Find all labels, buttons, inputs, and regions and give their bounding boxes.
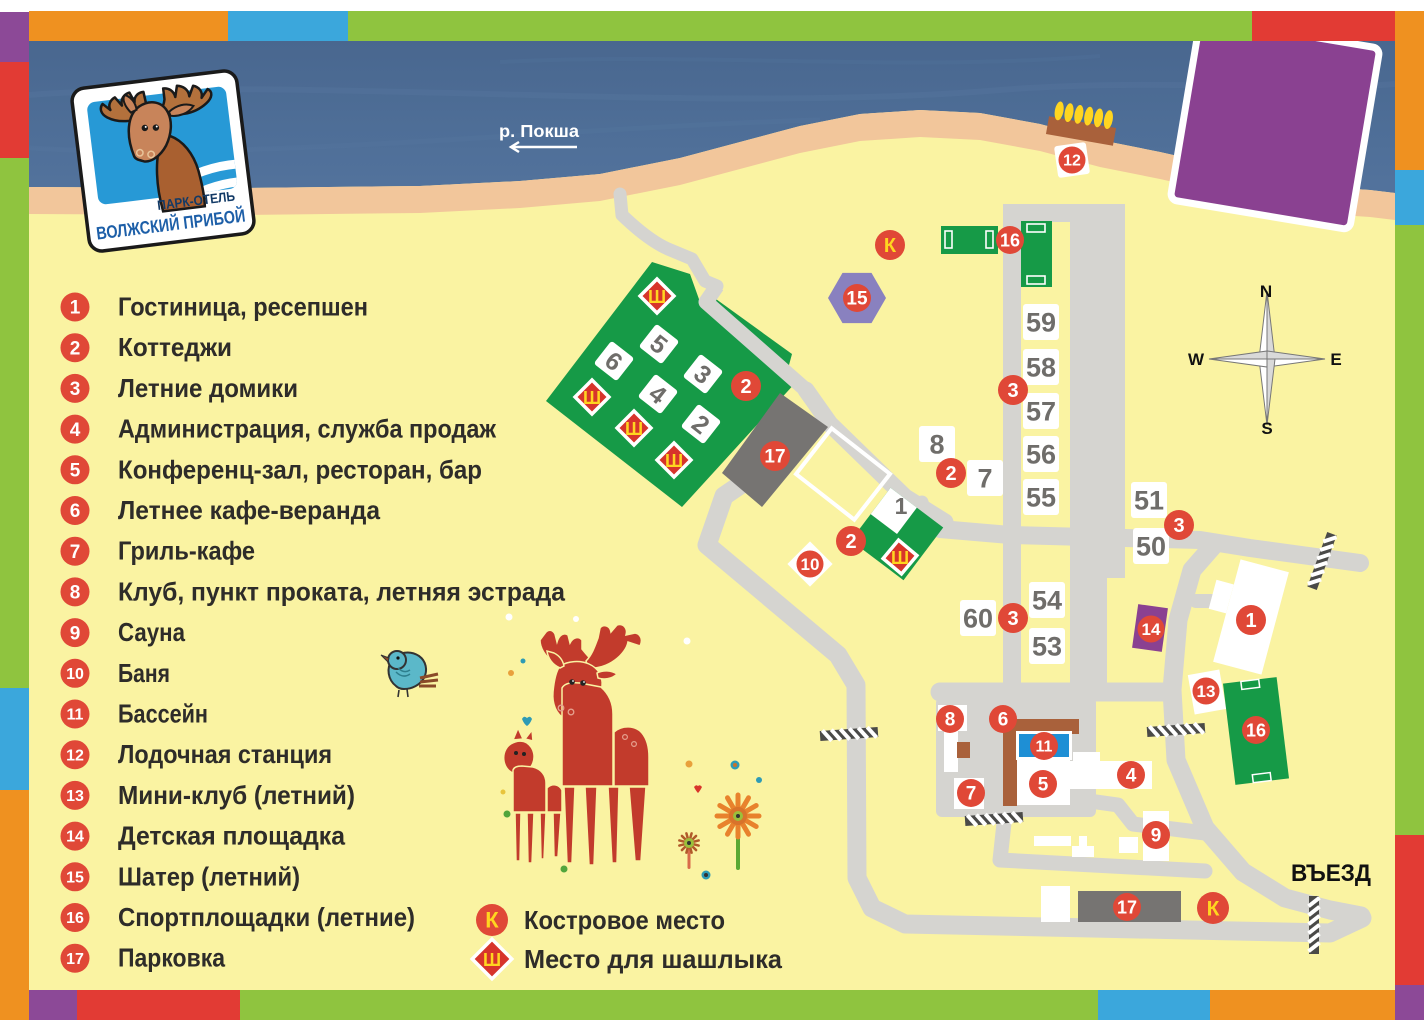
svg-text:4: 4 (70, 420, 81, 441)
svg-text:Ш: Ш (625, 419, 643, 439)
svg-text:12: 12 (1063, 153, 1081, 170)
svg-text:6: 6 (998, 710, 1009, 731)
svg-text:Конференц-зал, ресторан, бар: Конференц-зал, ресторан, бар (118, 454, 482, 484)
svg-text:р. Покша: р. Покша (499, 121, 579, 141)
svg-text:Гостиница, ресепшен: Гостиница, ресепшен (118, 292, 368, 322)
svg-text:11: 11 (67, 707, 84, 724)
svg-text:Шатер (летний): Шатер (летний) (118, 861, 300, 891)
svg-text:10: 10 (66, 666, 84, 683)
svg-text:14: 14 (1142, 620, 1161, 639)
svg-text:7: 7 (70, 542, 81, 563)
svg-text:Место для шашлыка: Место для шашлыка (524, 944, 783, 974)
svg-text:Ш: Ш (665, 451, 683, 471)
svg-text:8: 8 (929, 430, 944, 460)
svg-text:Костровое место: Костровое место (524, 905, 725, 935)
svg-text:13: 13 (66, 788, 84, 805)
svg-text:60: 60 (963, 604, 993, 634)
svg-text:Ш: Ш (648, 287, 666, 307)
svg-text:Мини-клуб (летний): Мини-клуб (летний) (118, 780, 355, 810)
svg-text:59: 59 (1026, 308, 1056, 338)
svg-text:8: 8 (70, 583, 81, 604)
svg-text:7: 7 (966, 784, 977, 805)
svg-text:2: 2 (945, 463, 956, 485)
svg-text:Ш: Ш (583, 388, 601, 408)
svg-text:Спортплощадки (летние): Спортплощадки (летние) (118, 902, 415, 932)
svg-text:Летнее кафе-веранда: Летнее кафе-веранда (118, 495, 380, 525)
svg-text:Парковка: Парковка (118, 943, 225, 973)
svg-text:10: 10 (801, 555, 820, 574)
svg-text:11: 11 (1036, 739, 1053, 756)
svg-text:Ш: Ш (483, 950, 501, 970)
svg-text:6: 6 (70, 501, 81, 522)
svg-text:3: 3 (1007, 608, 1018, 630)
svg-text:8: 8 (945, 710, 956, 731)
svg-text:Коттеджи: Коттеджи (118, 332, 232, 362)
svg-text:W: W (1188, 350, 1205, 369)
svg-text:57: 57 (1026, 397, 1056, 427)
svg-text:17: 17 (66, 951, 84, 968)
svg-text:N: N (1260, 282, 1272, 301)
svg-text:1: 1 (70, 298, 81, 319)
svg-text:53: 53 (1032, 632, 1062, 662)
svg-text:ВЪЕЗД: ВЪЕЗД (1291, 860, 1371, 887)
svg-text:17: 17 (764, 447, 785, 468)
svg-text:Лодочная станция: Лодочная станция (118, 739, 332, 769)
svg-text:13: 13 (1197, 682, 1216, 701)
svg-text:50: 50 (1136, 532, 1166, 562)
svg-text:3: 3 (1007, 380, 1018, 402)
svg-text:Баня: Баня (118, 658, 170, 688)
svg-text:К: К (485, 908, 499, 933)
svg-text:55: 55 (1026, 483, 1056, 513)
svg-text:Бассейн: Бассейн (118, 699, 208, 729)
svg-text:Клуб, пункт проката, летняя эс: Клуб, пункт проката, летняя эстрада (118, 576, 566, 606)
svg-text:15: 15 (846, 289, 868, 310)
svg-text:1: 1 (895, 493, 908, 519)
svg-text:56: 56 (1026, 440, 1056, 470)
svg-text:5: 5 (1038, 775, 1049, 796)
svg-text:4: 4 (1126, 766, 1137, 787)
svg-text:51: 51 (1134, 486, 1164, 516)
svg-text:Сауна: Сауна (118, 617, 185, 647)
svg-text:1: 1 (1245, 610, 1256, 632)
svg-text:16: 16 (1000, 230, 1020, 250)
svg-text:3: 3 (70, 379, 81, 400)
svg-text:Ш: Ш (891, 548, 909, 568)
svg-text:Гриль-кафе: Гриль-кафе (118, 536, 255, 566)
svg-text:Детская площадка: Детская площадка (118, 821, 346, 851)
svg-text:К: К (1207, 897, 1220, 920)
svg-text:Летние домики: Летние домики (118, 373, 298, 403)
svg-text:2: 2 (70, 338, 81, 359)
svg-text:Администрация, служба продаж: Администрация, служба продаж (118, 414, 497, 444)
svg-text:14: 14 (66, 829, 84, 846)
svg-text:E: E (1330, 350, 1341, 369)
svg-text:58: 58 (1026, 353, 1056, 383)
svg-text:12: 12 (66, 747, 84, 764)
svg-text:3: 3 (1173, 515, 1184, 537)
svg-text:2: 2 (740, 376, 751, 398)
svg-text:17: 17 (1117, 897, 1137, 917)
svg-text:S: S (1261, 419, 1272, 438)
svg-text:9: 9 (1151, 826, 1162, 847)
svg-text:К: К (884, 235, 897, 257)
svg-text:54: 54 (1032, 586, 1062, 616)
svg-text:7: 7 (977, 464, 992, 494)
svg-text:9: 9 (70, 623, 81, 644)
svg-text:15: 15 (66, 869, 84, 886)
svg-text:2: 2 (845, 531, 856, 553)
svg-text:5: 5 (70, 460, 81, 481)
svg-text:16: 16 (66, 910, 84, 927)
svg-text:16: 16 (1246, 720, 1266, 740)
